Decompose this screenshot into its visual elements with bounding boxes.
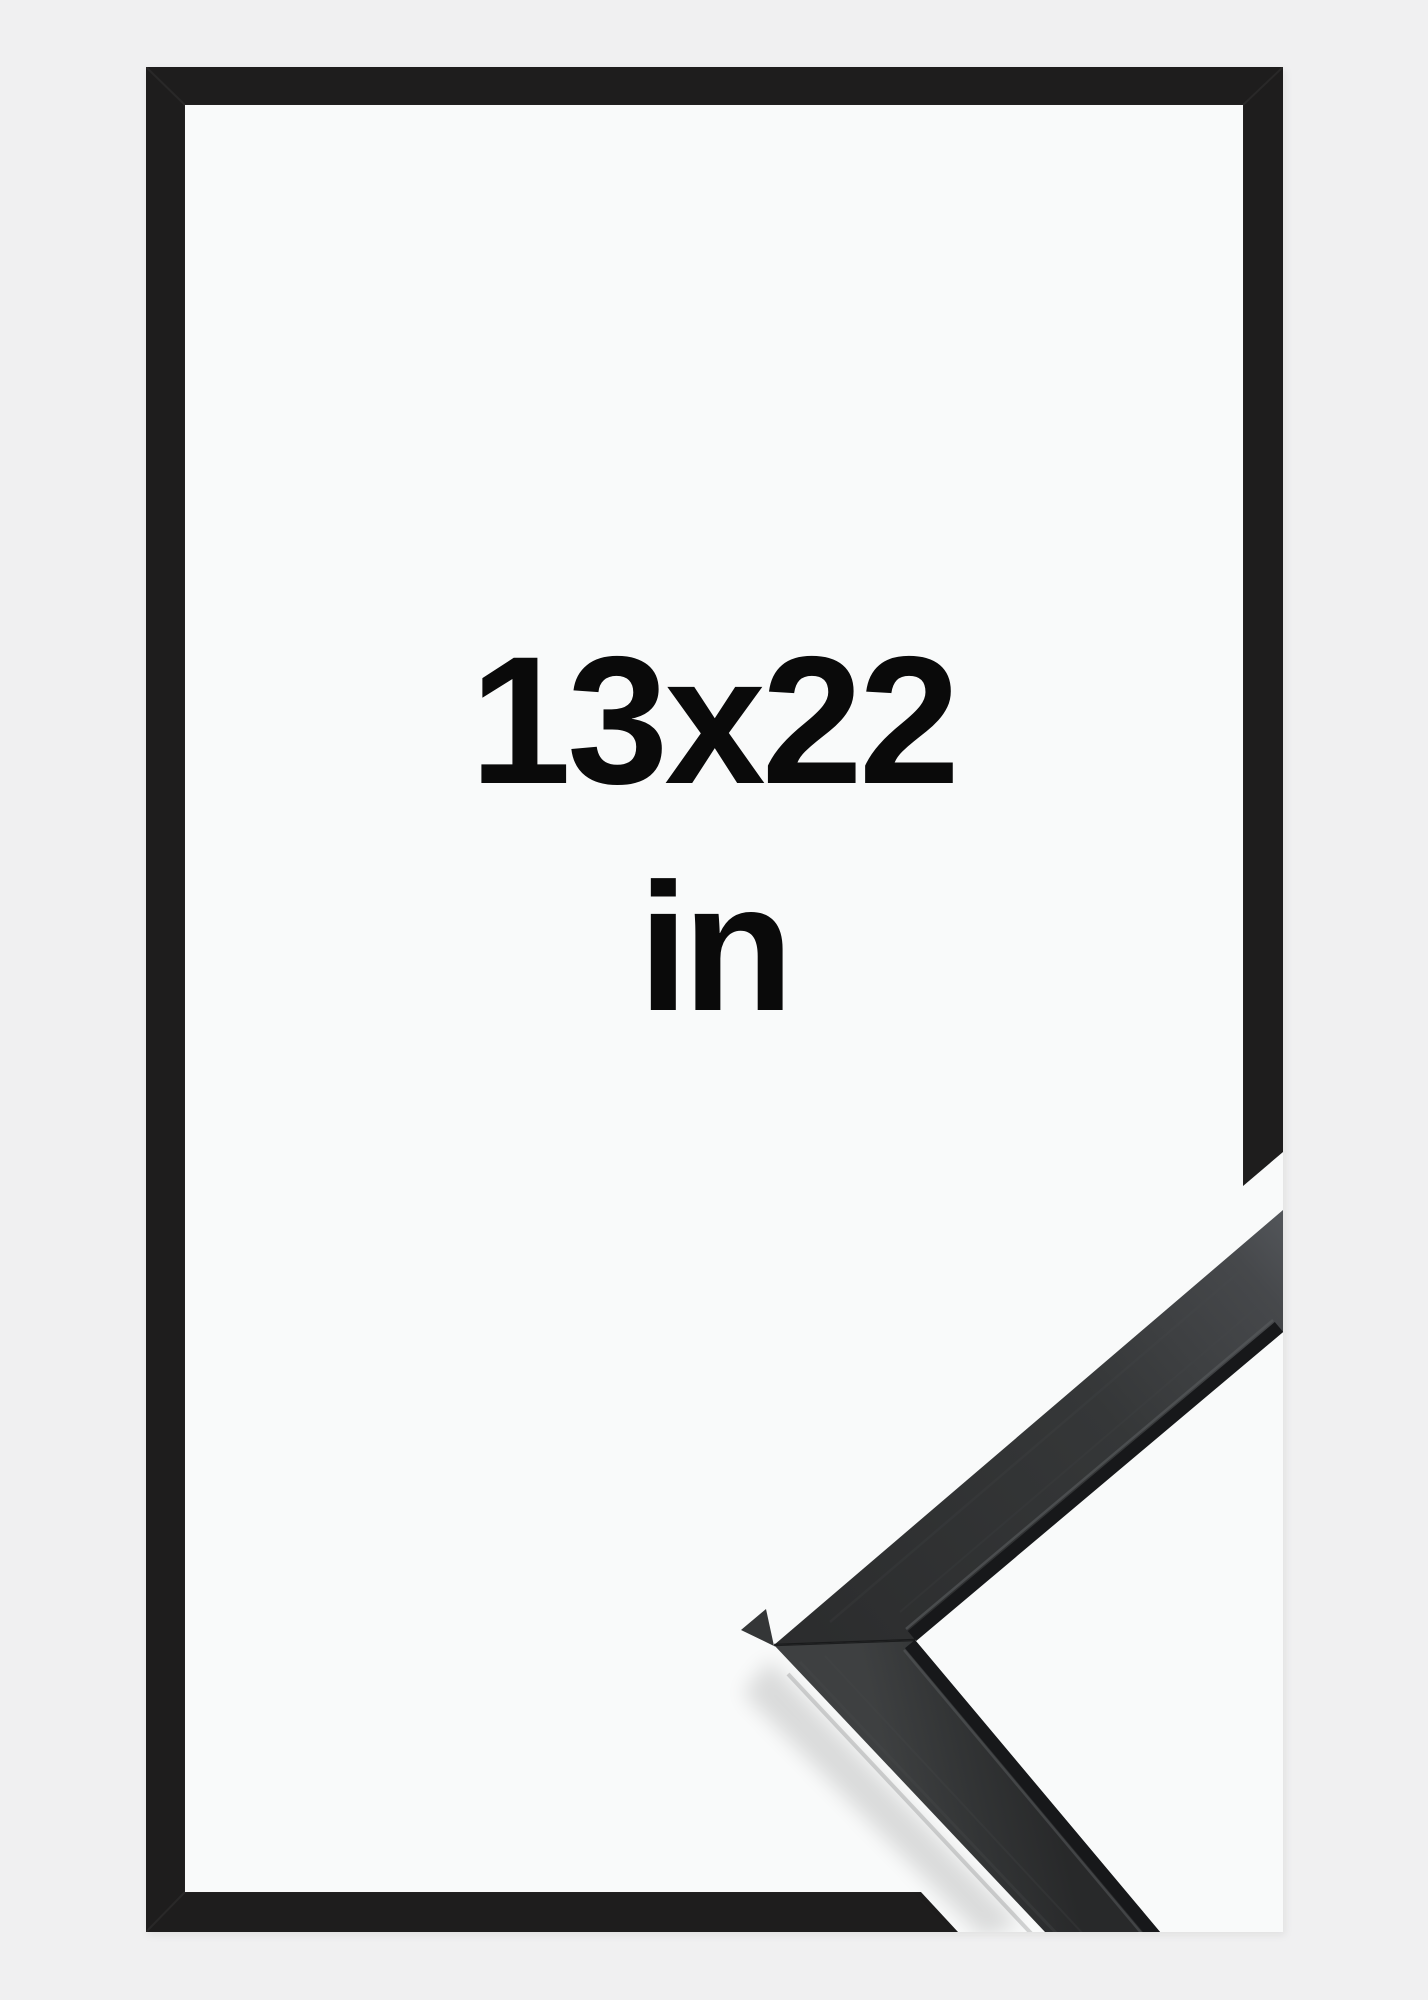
size-label: 13x22 xyxy=(470,629,956,811)
product-image: 13x22 in xyxy=(0,0,1428,2000)
unit-label: in xyxy=(638,856,788,1038)
